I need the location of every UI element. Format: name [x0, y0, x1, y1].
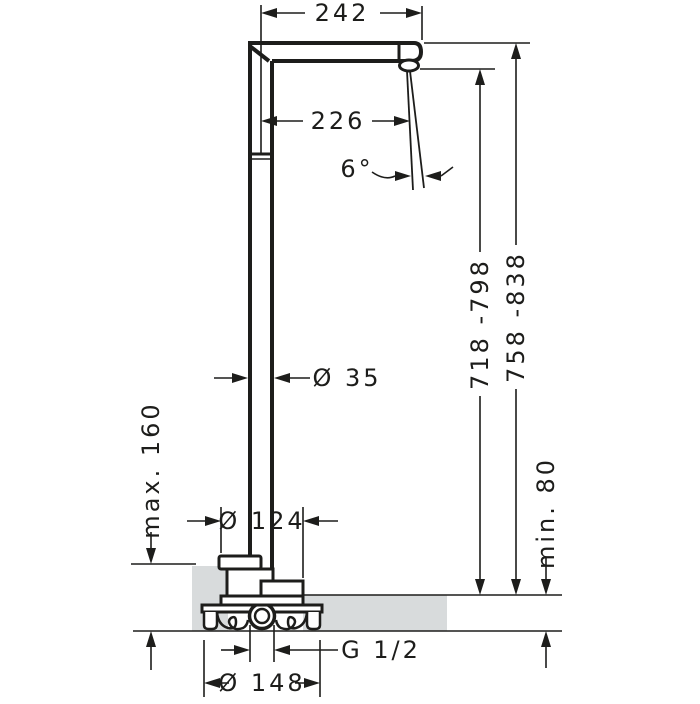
dim-connection: G 1/2: [221, 636, 421, 664]
dim-718-arrow-bottom: [475, 579, 485, 595]
flange-wave-right: [276, 612, 307, 629]
base-plate: [221, 596, 303, 605]
dim-max160-arrow-top: [146, 548, 156, 564]
dimension-drawing: 242 226 6° Ø 35 718 -798 758 -838: [0, 0, 700, 700]
dim-min80-label: min. 80: [532, 457, 560, 569]
floor-section: [131, 564, 562, 631]
dim-35-arrow-right: [274, 373, 290, 383]
dim-min-floor: min. 80: [532, 457, 560, 668]
dim-g12-label: G 1/2: [341, 636, 421, 664]
flange-inner-ring: [255, 609, 269, 623]
dim-148-label: Ø 148: [218, 669, 305, 697]
dim-6deg-arrow-right: [425, 171, 441, 181]
dim-g12-arrow-left: [234, 645, 250, 655]
dim-148-arrow-right: [304, 678, 320, 688]
floor-right-fill: [303, 595, 447, 631]
dim-max160-label: max. 160: [137, 401, 165, 538]
dim-max-floor: max. 160: [137, 401, 165, 670]
base-step: [261, 581, 303, 596]
dim-718-arrow-top: [475, 69, 485, 85]
dim-35-label: Ø 35: [312, 364, 381, 392]
dim-6deg-label: 6°: [340, 155, 373, 183]
basic-set-flange: [202, 604, 322, 663]
dim-outlet-height: 718 -798: [420, 69, 495, 595]
dim-758-arrow-bottom: [511, 579, 521, 595]
base-escutcheon: [219, 556, 303, 605]
dim-242-label: 242: [315, 0, 370, 27]
dim-flange-diameter: Ø 148: [204, 640, 320, 697]
dim-758-label: 758 -838: [502, 251, 530, 383]
dim-g12-arrow-right: [274, 645, 290, 655]
dim-max160-arrow-bottom: [146, 631, 156, 647]
flange-tab-left: [204, 612, 217, 629]
dim-6deg-arrow-left: [395, 171, 411, 181]
dim-spray-angle: 6°: [340, 155, 453, 183]
aerator-outlet: [400, 60, 419, 71]
dim-226-arrow-right: [394, 116, 410, 126]
lever-handle: [219, 556, 261, 569]
dim-124-label: Ø 124: [218, 507, 305, 535]
dim-pipe-diameter: Ø 35: [214, 364, 382, 392]
dim-min80-arrow-bottom: [541, 631, 551, 647]
dim-reach-outlet: 226: [261, 107, 410, 135]
dim-242-arrow-left: [261, 8, 277, 18]
dim-758-arrow-top: [511, 43, 521, 59]
dim-718-label: 718 -798: [466, 258, 494, 390]
dim-242-arrow-right: [406, 8, 422, 18]
technical-drawing-page: 242 226 6° Ø 35 718 -798 758 -838: [0, 0, 700, 700]
dim-226-label: 226: [311, 107, 366, 135]
flange-tab-right: [307, 612, 320, 629]
dim-35-arrow-left: [232, 373, 248, 383]
dim-6deg-leader: [372, 172, 395, 178]
dim-min80-arrow-top: [541, 579, 551, 595]
dim-6deg-tail: [441, 167, 453, 176]
